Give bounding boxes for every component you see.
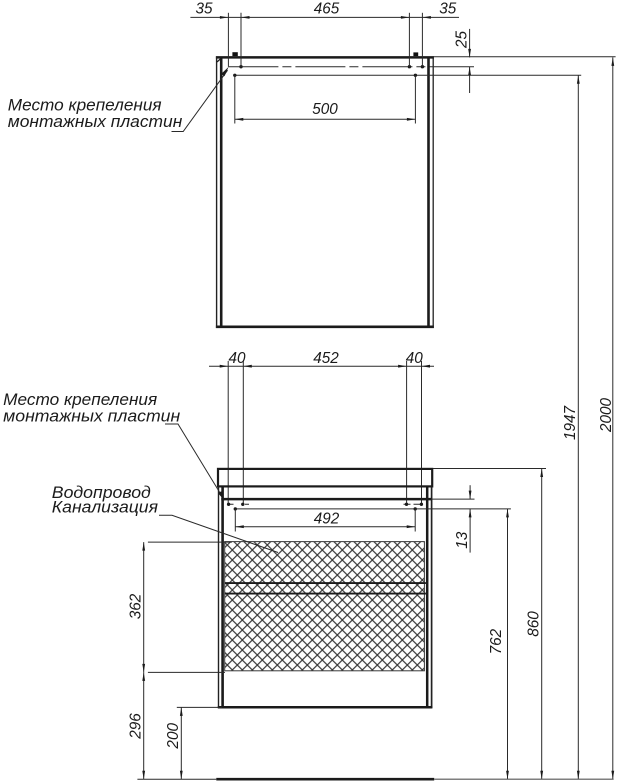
svg-text:1947: 1947: [562, 405, 579, 440]
svg-text:200: 200: [165, 723, 182, 750]
svg-text:35: 35: [195, 1, 213, 18]
svg-text:2000: 2000: [598, 397, 615, 433]
svg-text:25: 25: [453, 31, 470, 50]
svg-text:465: 465: [314, 0, 340, 17]
svg-text:762: 762: [488, 628, 505, 654]
svg-text:13: 13: [454, 531, 471, 549]
svg-text:452: 452: [313, 350, 339, 367]
svg-text:362: 362: [128, 593, 145, 619]
svg-text:монтажных пластин: монтажных пластин: [3, 407, 180, 426]
svg-text:монтажных пластин: монтажных пластин: [8, 112, 183, 131]
svg-text:296: 296: [128, 713, 145, 740]
svg-text:35: 35: [439, 1, 457, 18]
svg-text:40: 40: [406, 350, 424, 367]
svg-text:860: 860: [526, 611, 543, 637]
svg-text:Канализация: Канализация: [52, 498, 158, 517]
svg-text:492: 492: [314, 511, 340, 528]
svg-text:40: 40: [228, 350, 246, 367]
svg-text:500: 500: [312, 101, 338, 118]
